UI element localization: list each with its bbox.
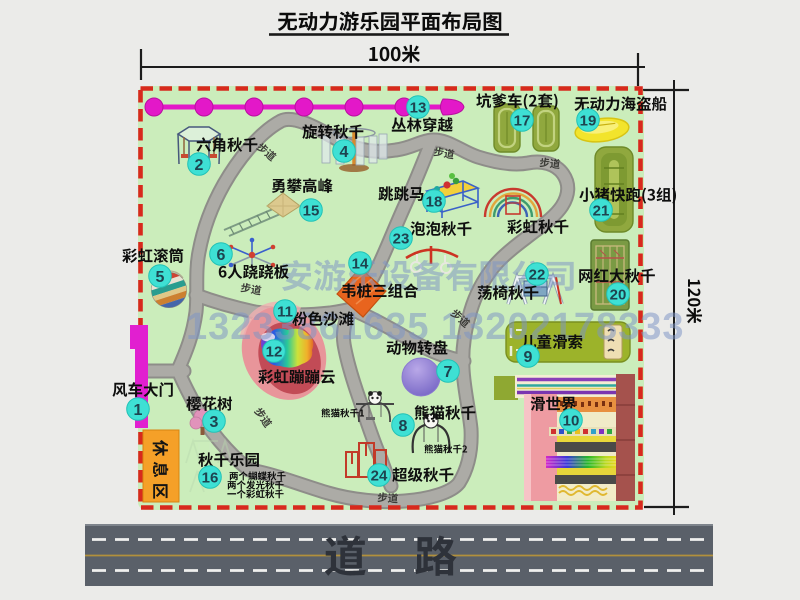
svg-text:23: 23	[393, 230, 410, 247]
svg-text:20: 20	[610, 286, 627, 303]
svg-text:5: 5	[156, 269, 165, 286]
svg-text:12: 12	[266, 343, 283, 360]
svg-text:9: 9	[524, 349, 533, 366]
svg-text:7: 7	[444, 364, 453, 381]
svg-text:6: 6	[217, 247, 226, 264]
svg-text:22: 22	[529, 266, 546, 283]
svg-text:15: 15	[303, 202, 320, 219]
svg-text:13233861635 13202178333: 13233861635 13202178333	[186, 306, 685, 348]
svg-text:13: 13	[410, 99, 427, 116]
svg-text:1: 1	[134, 402, 143, 419]
svg-text:14: 14	[352, 255, 369, 272]
svg-text:11: 11	[277, 303, 293, 320]
svg-text:8: 8	[399, 418, 408, 435]
svg-text:24: 24	[371, 467, 388, 484]
svg-text:3: 3	[210, 414, 219, 431]
svg-text:18: 18	[426, 193, 443, 210]
svg-text:16: 16	[202, 469, 219, 486]
svg-text:4: 4	[340, 144, 349, 161]
svg-text:10: 10	[563, 412, 580, 429]
svg-text:2: 2	[195, 157, 204, 174]
svg-text:17: 17	[514, 112, 531, 129]
svg-text:19: 19	[580, 112, 597, 129]
svg-text:21: 21	[593, 202, 610, 219]
